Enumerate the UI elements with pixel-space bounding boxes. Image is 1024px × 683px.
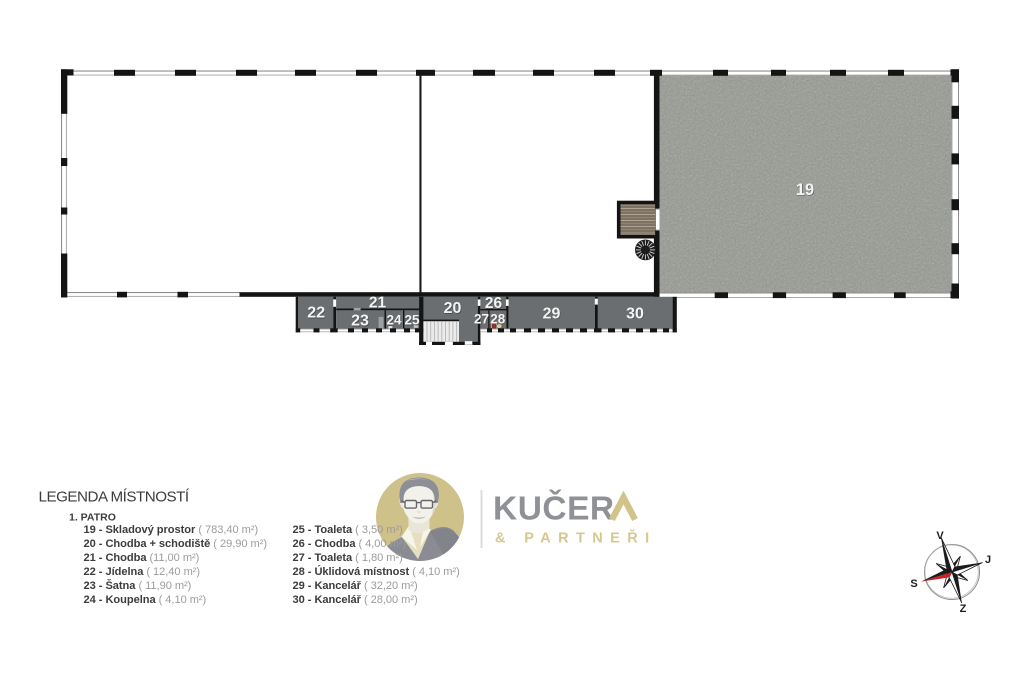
- svg-text:21 - Chodba (11,00 m²): 21 - Chodba (11,00 m²): [84, 552, 200, 564]
- svg-text:KUČER: KUČER: [493, 489, 615, 528]
- svg-text:30: 30: [626, 305, 644, 322]
- svg-text:24: 24: [386, 313, 402, 328]
- svg-text:25: 25: [404, 313, 420, 328]
- svg-text:20: 20: [444, 300, 462, 317]
- svg-text:19 - Skladový prostor ( 783,40: 19 - Skladový prostor ( 783,40 m²): [84, 524, 259, 536]
- svg-text:24 - Koupelna ( 4,10 m²): 24 - Koupelna ( 4,10 m²): [84, 594, 207, 606]
- svg-text:22 - Jídelna ( 12,40 m²): 22 - Jídelna ( 12,40 m²): [84, 566, 201, 578]
- svg-text:S: S: [910, 578, 917, 590]
- svg-text:Z: Z: [960, 603, 967, 615]
- svg-text:28: 28: [490, 311, 506, 326]
- svg-text:23: 23: [351, 312, 369, 329]
- svg-text:19: 19: [796, 181, 814, 199]
- svg-text:LEGENDA MÍSTNOSTÍ: LEGENDA MÍSTNOSTÍ: [39, 488, 190, 505]
- svg-text:27 - Toaleta ( 1,80 m²): 27 - Toaleta ( 1,80 m²): [293, 552, 403, 564]
- svg-text:V: V: [936, 530, 944, 542]
- svg-text:23 - Šatna ( 11,90 m²): 23 - Šatna ( 11,90 m²): [84, 579, 192, 592]
- svg-text:1. PATRO: 1. PATRO: [69, 511, 116, 523]
- svg-text:22: 22: [307, 304, 325, 321]
- svg-text:& PARTNEŘI: & PARTNEŘI: [495, 529, 657, 547]
- svg-text:27: 27: [474, 311, 489, 326]
- svg-text:26 - Chodba ( 4,00 m²): 26 - Chodba ( 4,00 m²): [293, 538, 407, 550]
- svg-text:21: 21: [369, 295, 387, 312]
- svg-text:25 - Toaleta ( 3,50 m²): 25 - Toaleta ( 3,50 m²): [293, 524, 403, 536]
- svg-text:J: J: [985, 554, 991, 566]
- svg-text:28 - Úklidová místnost ( 4,10: 28 - Úklidová místnost ( 4,10 m²): [293, 565, 460, 578]
- svg-text:30 - Kancelář ( 28,00 m²): 30 - Kancelář ( 28,00 m²): [293, 594, 418, 606]
- svg-text:26: 26: [485, 295, 503, 312]
- svg-text:29: 29: [543, 305, 561, 322]
- svg-text:20 - Chodba + schodiště ( 29,9: 20 - Chodba + schodiště ( 29,90 m²): [84, 538, 268, 550]
- svg-text:29 - Kancelář ( 32,20 m²): 29 - Kancelář ( 32,20 m²): [293, 580, 418, 592]
